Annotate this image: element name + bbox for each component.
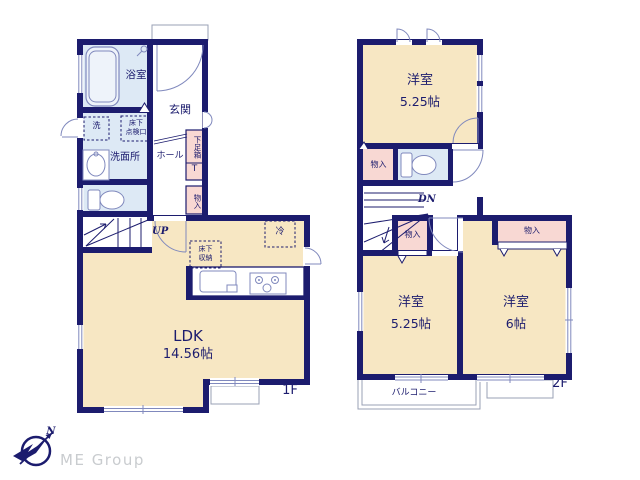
compass-icon — [13, 433, 52, 465]
label-storage-2f-1: 物入 — [363, 161, 394, 169]
label-underfloor-hatch-line1: 床下 — [121, 120, 151, 127]
label-floor2: 2F — [546, 377, 574, 391]
label-ldk: LDK — [157, 329, 219, 345]
label-fridge: 冷 — [266, 228, 294, 237]
floorplan-canvas: 浴室 玄関 洗 床下 点検口 洗面所 ホール 下足箱 T 物入 UP 冷 床下 … — [0, 0, 640, 480]
label-washroom: 洗面所 — [101, 153, 149, 164]
label-room3: 洋室 — [490, 296, 542, 310]
label-balcony: バルコニー — [378, 389, 450, 398]
label-storage-2f-3: 物入 — [506, 227, 558, 235]
label-room1: 洋室 — [394, 74, 446, 88]
label-up: UP — [152, 227, 182, 238]
label-storage-2f-2: 物入 — [397, 231, 428, 239]
label-hall: ホール — [148, 152, 192, 161]
label-bathroom: 浴室 — [113, 70, 159, 81]
label-room3-size: 6帖 — [492, 317, 540, 330]
label-washer: 洗 — [84, 122, 109, 130]
label-floor1: 1F — [276, 384, 304, 398]
label-toilet-t: T — [186, 165, 203, 174]
label-underfloor-hatch-line2: 点検口 — [121, 129, 151, 136]
label-underfloor-storage-line2: 収納 — [190, 255, 221, 262]
label-storage-1f: 物入 — [189, 190, 201, 212]
label-entrance: 玄関 — [158, 104, 202, 116]
brand-logo-text: ME Group — [60, 451, 145, 469]
label-shoebox: 下足箱 — [189, 133, 201, 162]
label-ldk-size: 14.56帖 — [150, 348, 226, 362]
label-compass-north: N — [44, 427, 58, 438]
floorplan-graphics — [0, 0, 640, 480]
label-dn: DN — [418, 195, 448, 206]
label-room1-size: 5.25帖 — [390, 95, 450, 108]
label-underfloor-storage-line1: 床下 — [190, 246, 221, 253]
label-room2-size: 5.25帖 — [381, 317, 441, 330]
label-room2: 洋室 — [385, 296, 437, 310]
